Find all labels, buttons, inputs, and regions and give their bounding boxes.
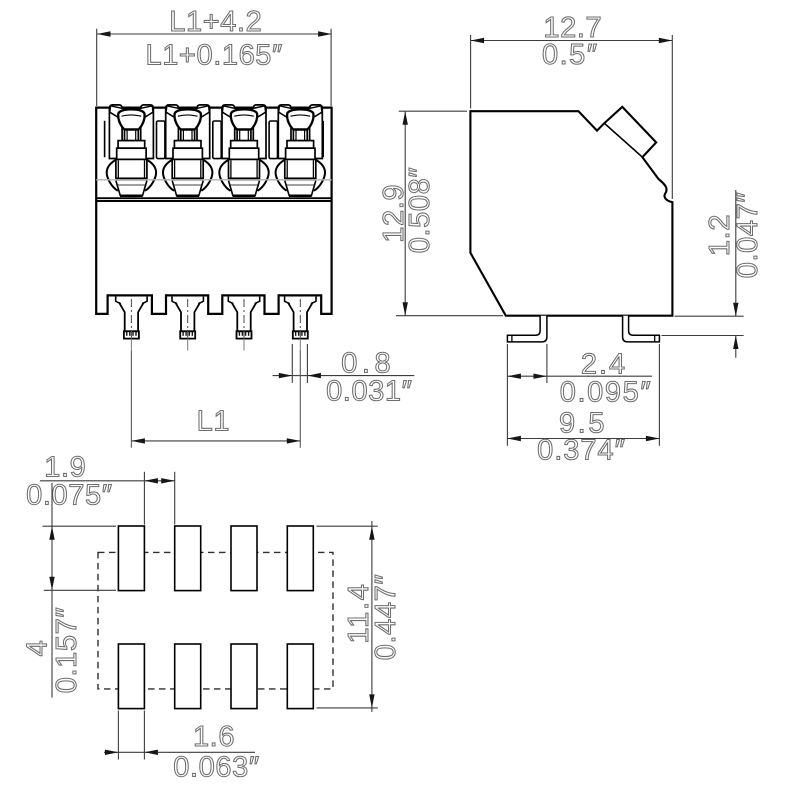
svg-text:0.075″: 0.075″ (26, 480, 112, 512)
svg-text:1.6: 1.6 (193, 721, 235, 753)
svg-text:0.095″: 0.095″ (560, 377, 652, 409)
svg-text:4: 4 (22, 640, 54, 657)
svg-text:0.047″: 0.047″ (732, 192, 764, 278)
svg-text:0.374″: 0.374″ (537, 435, 626, 467)
svg-text:0.447″: 0.447″ (370, 574, 402, 660)
svg-text:L1+4.2: L1+4.2 (169, 6, 262, 38)
svg-text:0.063″: 0.063″ (173, 752, 259, 784)
svg-text:L1: L1 (197, 406, 230, 438)
svg-text:0.8: 0.8 (341, 347, 395, 379)
svg-text:0.031″: 0.031″ (326, 376, 412, 408)
svg-text:0.157″: 0.157″ (51, 607, 83, 693)
svg-text:0.5″: 0.5″ (542, 39, 599, 71)
svg-text:0.508″: 0.508″ (404, 167, 436, 253)
svg-text:L1+0.165″: L1+0.165″ (145, 40, 282, 72)
